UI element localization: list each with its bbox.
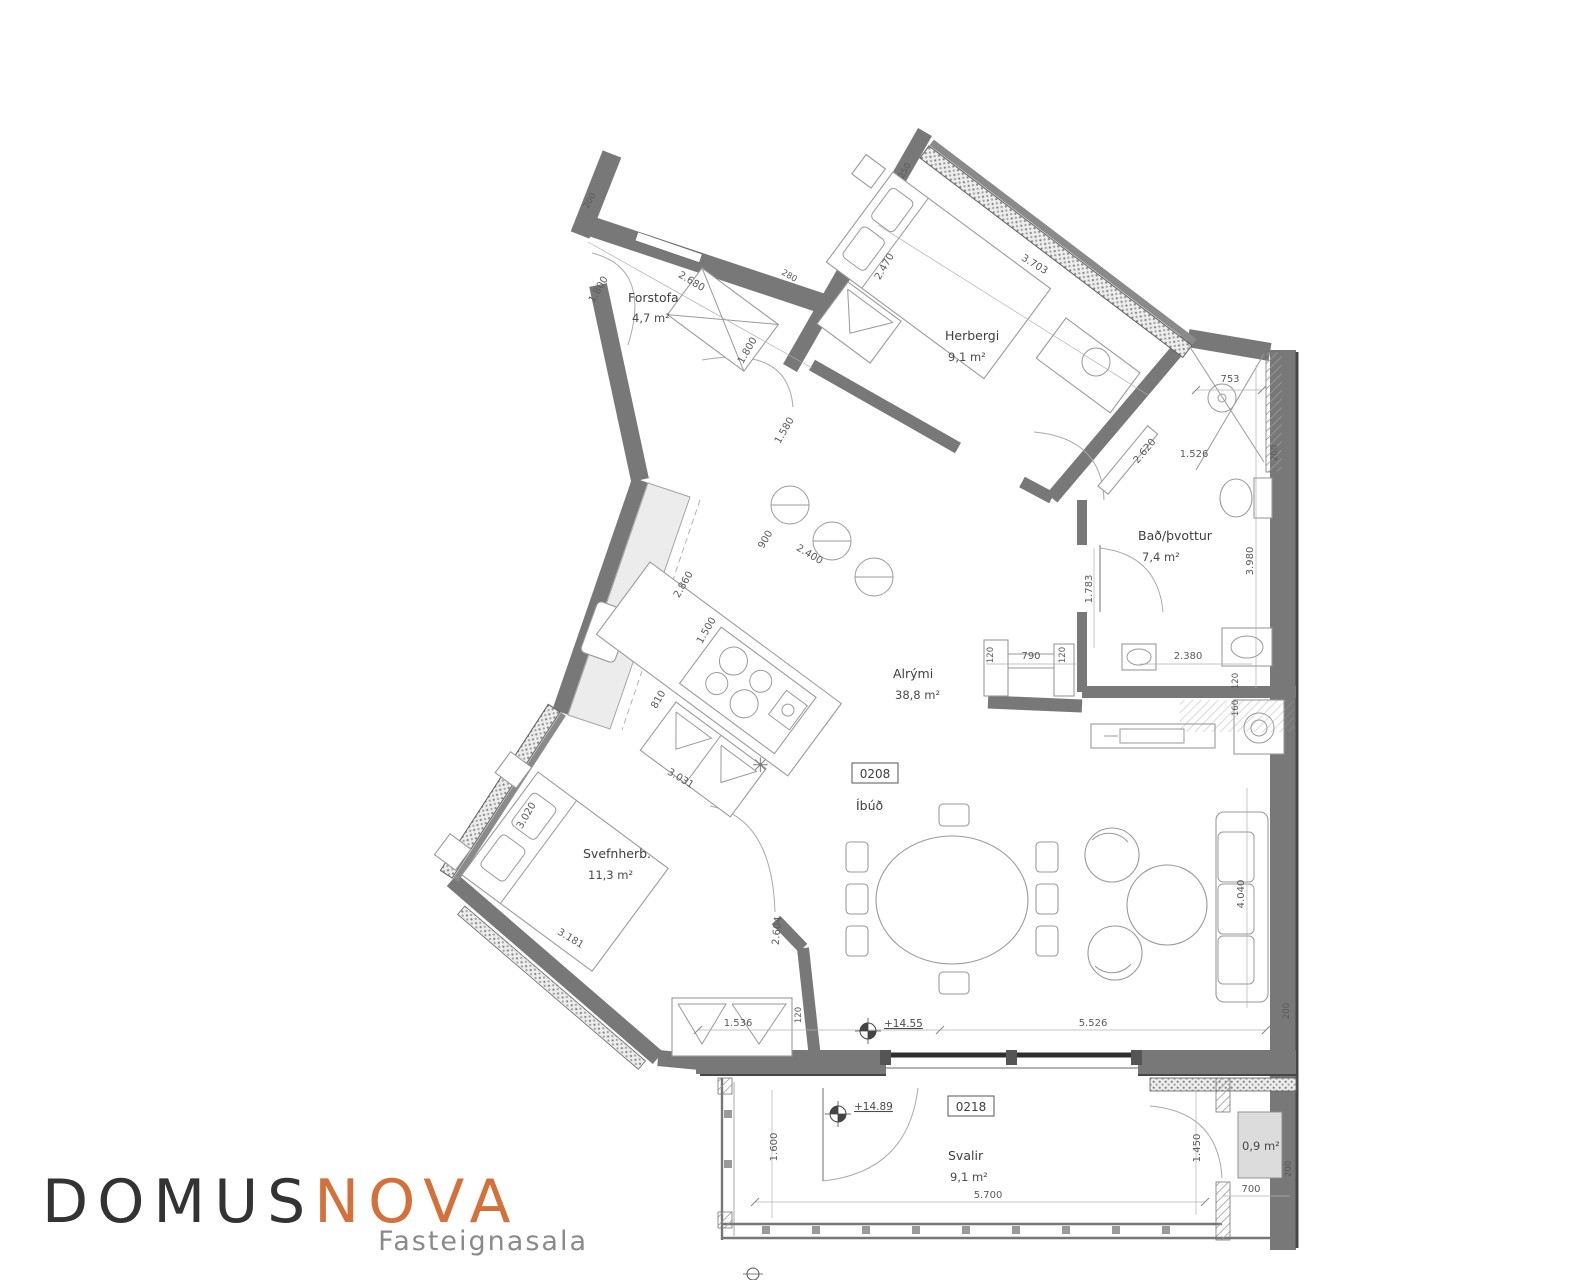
- storage-door-arc: [1150, 1106, 1222, 1178]
- svg-text:1.600: 1.600: [769, 1133, 780, 1162]
- svg-text:120: 120: [794, 1007, 804, 1023]
- room-label-herbergi: Herbergi: [945, 328, 999, 343]
- svg-text:200: 200: [1270, 445, 1280, 461]
- svefnherbergi-door-arc: [710, 806, 775, 912]
- bed-herbergi: [801, 153, 1051, 379]
- balcony-railing: [718, 1078, 1290, 1240]
- floor-plan-drawing: ✳: [0, 0, 1577, 1280]
- brand-logo: DOMUSNOVA Fasteignasala: [42, 1167, 588, 1257]
- svg-text:1.536: 1.536: [724, 1018, 753, 1029]
- svg-text:1.783: 1.783: [1084, 575, 1095, 604]
- sheet-mark: [743, 1268, 763, 1280]
- balcony-id: 0218: [956, 1100, 987, 1114]
- level-marker-balcony: [825, 1101, 851, 1127]
- logo-domus: DOMUS: [42, 1167, 314, 1237]
- svg-text:120: 120: [1058, 647, 1068, 663]
- svg-text:2.400: 2.400: [794, 543, 824, 567]
- svg-text:9,1 m²: 9,1 m²: [948, 350, 986, 364]
- room-label-geymsla: 0,9 m²: [1242, 1139, 1280, 1153]
- room-label-svefnherb: Svefnherb.: [583, 846, 651, 861]
- svg-text:1.526: 1.526: [1180, 449, 1209, 460]
- svg-text:38,8 m²: 38,8 m²: [895, 688, 940, 702]
- room-label-bad: Bað/þvottur: [1138, 528, 1213, 543]
- svg-text:7,4 m²: 7,4 m²: [1142, 550, 1180, 564]
- svg-text:810: 810: [649, 689, 668, 711]
- svg-text:2.604: 2.604: [771, 916, 784, 945]
- svg-text:700: 700: [1241, 1184, 1260, 1195]
- logo-tagline: Fasteignasala: [378, 1226, 588, 1257]
- lounge-set: [1085, 828, 1207, 980]
- apartment-type: Íbúð: [856, 798, 883, 813]
- svg-text:900: 900: [756, 529, 775, 551]
- shower-head: [1208, 384, 1236, 412]
- svg-text:1.580: 1.580: [773, 416, 797, 446]
- svg-text:4.040: 4.040: [1236, 880, 1247, 909]
- level-marker-main: [855, 1018, 881, 1044]
- dining-table: [876, 836, 1028, 964]
- svg-text:5.700: 5.700: [974, 1190, 1003, 1201]
- svg-text:9,1 m²: 9,1 m²: [950, 1170, 988, 1184]
- desk-herbergi: [1036, 318, 1140, 413]
- svg-text:790: 790: [1021, 651, 1040, 662]
- svg-text:11,3 m²: 11,3 m²: [588, 868, 633, 882]
- room-label-svalir: Svalir: [948, 1148, 984, 1163]
- svg-text:160: 160: [1231, 700, 1241, 716]
- svg-text:1.450: 1.450: [1192, 1134, 1203, 1163]
- svg-text:120: 120: [986, 647, 996, 663]
- svg-text:753: 753: [1220, 374, 1239, 385]
- svg-text:+14.55: +14.55: [884, 1018, 923, 1030]
- svg-text:120: 120: [1231, 673, 1241, 689]
- armchair: [1085, 828, 1139, 882]
- svg-text:+14.89: +14.89: [854, 1101, 893, 1113]
- coffee-table: [1127, 865, 1207, 945]
- svg-text:4,7 m²: 4,7 m²: [632, 311, 670, 325]
- balcony-sliding-door: [880, 1050, 1142, 1068]
- toilet: [1220, 478, 1272, 518]
- svg-text:3.980: 3.980: [1245, 547, 1256, 576]
- floor-plan-sheet: ✳: [0, 0, 1577, 1280]
- room-label-forstofa: Forstofa: [628, 290, 679, 305]
- freezer-icon: ✳: [752, 753, 769, 777]
- room-label-alrymi: Alrými: [893, 666, 933, 681]
- bathroom-sink: [1222, 628, 1272, 666]
- counter-basin: [1122, 644, 1156, 670]
- svg-text:200: 200: [1282, 1003, 1292, 1019]
- dining-set: [846, 804, 1058, 994]
- armchair: [1088, 926, 1142, 980]
- svg-text:5.526: 5.526: [1079, 1018, 1108, 1029]
- apartment-id: 0208: [860, 767, 891, 781]
- svg-text:200: 200: [1284, 1161, 1294, 1177]
- pendant-lights: [771, 486, 893, 596]
- svg-text:2.380: 2.380: [1174, 651, 1203, 662]
